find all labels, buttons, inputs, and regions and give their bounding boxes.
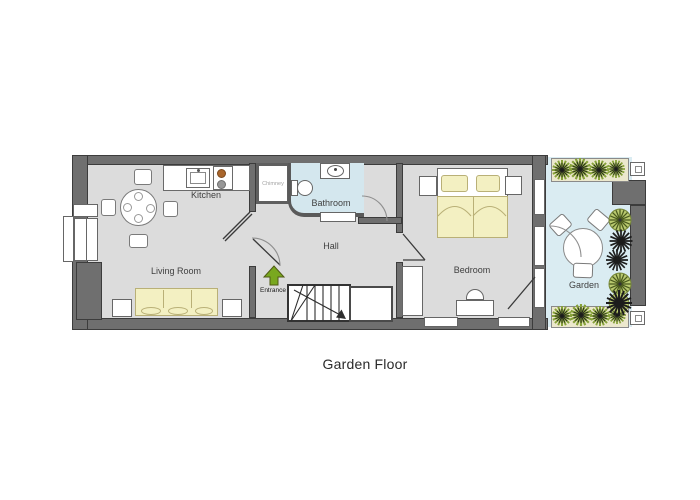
living-room-label: Living Room (141, 266, 211, 276)
plan-title: Garden Floor (275, 356, 455, 372)
garden-label: Garden (554, 280, 614, 290)
bathroom-door-arc (362, 196, 387, 221)
stair-direction-arrow (336, 310, 346, 320)
garden-border-plants (606, 209, 633, 316)
garden-door-swing (508, 277, 535, 309)
hall-label: Hall (311, 241, 351, 251)
bedroom-label: Bedroom (442, 265, 502, 275)
planter-plants-top (552, 158, 625, 180)
bedroom-door-swing (403, 234, 425, 260)
stair-treads (291, 285, 346, 321)
bathroom-label: Bathroom (301, 198, 361, 208)
livingroom-door-swing (223, 212, 280, 266)
entrance-label: Entrance (249, 287, 297, 294)
kitchen-label: Kitchen (176, 190, 236, 200)
garden-door-arc (550, 226, 581, 257)
bed-blanket-folds (438, 207, 506, 217)
entrance-arrow-icon (264, 266, 284, 285)
floor-plan-page: Chimney (0, 0, 700, 500)
